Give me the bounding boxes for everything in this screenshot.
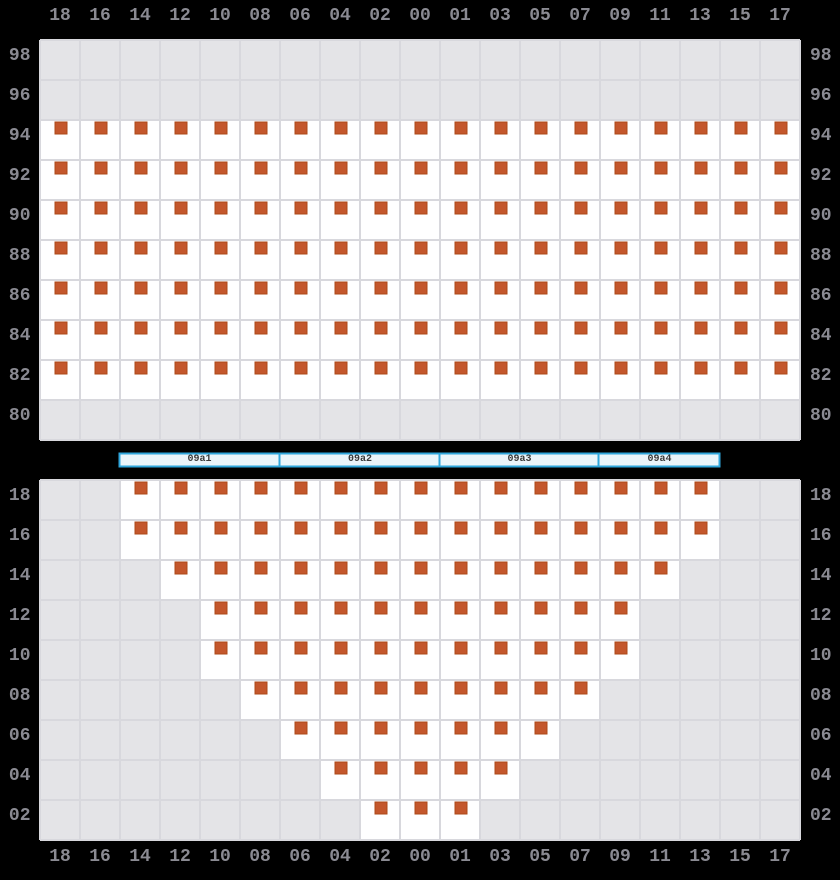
svg-text:09a1: 09a1 (187, 454, 211, 465)
svg-text:90: 90 (810, 206, 832, 226)
svg-text:86: 86 (810, 286, 832, 306)
svg-text:92: 92 (9, 166, 31, 186)
svg-text:11: 11 (649, 6, 671, 26)
svg-text:14: 14 (129, 6, 151, 26)
svg-text:98: 98 (9, 46, 31, 66)
svg-text:06: 06 (289, 847, 311, 867)
svg-text:16: 16 (810, 526, 832, 546)
svg-text:09a3: 09a3 (507, 454, 531, 465)
svg-text:10: 10 (9, 646, 31, 666)
svg-text:02: 02 (810, 806, 832, 826)
svg-text:18: 18 (9, 486, 31, 506)
svg-text:09: 09 (609, 847, 631, 867)
svg-text:90: 90 (9, 206, 31, 226)
svg-text:04: 04 (9, 766, 31, 786)
svg-text:18: 18 (49, 6, 71, 26)
svg-text:04: 04 (329, 847, 351, 867)
svg-text:01: 01 (449, 847, 471, 867)
svg-text:06: 06 (9, 726, 31, 746)
svg-text:03: 03 (489, 847, 511, 867)
svg-text:02: 02 (9, 806, 31, 826)
svg-text:96: 96 (9, 86, 31, 106)
svg-text:10: 10 (209, 6, 231, 26)
svg-text:86: 86 (9, 286, 31, 306)
svg-text:05: 05 (529, 6, 551, 26)
svg-text:07: 07 (569, 847, 591, 867)
svg-text:04: 04 (329, 6, 351, 26)
svg-text:06: 06 (289, 6, 311, 26)
svg-text:98: 98 (810, 46, 832, 66)
svg-text:14: 14 (129, 847, 151, 867)
svg-text:04: 04 (810, 766, 832, 786)
svg-text:10: 10 (810, 646, 832, 666)
svg-text:82: 82 (810, 366, 832, 386)
svg-text:16: 16 (89, 847, 111, 867)
svg-text:09a4: 09a4 (647, 454, 671, 465)
svg-text:12: 12 (810, 606, 832, 626)
svg-text:13: 13 (689, 847, 711, 867)
svg-text:08: 08 (249, 847, 271, 867)
svg-text:03: 03 (489, 6, 511, 26)
svg-text:06: 06 (810, 726, 832, 746)
svg-text:08: 08 (810, 686, 832, 706)
svg-text:12: 12 (169, 6, 191, 26)
svg-text:17: 17 (769, 847, 791, 867)
svg-text:02: 02 (369, 6, 391, 26)
svg-text:94: 94 (9, 126, 31, 146)
svg-text:08: 08 (249, 6, 271, 26)
svg-text:84: 84 (9, 326, 31, 346)
svg-text:15: 15 (729, 847, 751, 867)
svg-text:96: 96 (810, 86, 832, 106)
svg-text:09: 09 (609, 6, 631, 26)
svg-text:88: 88 (9, 246, 31, 266)
svg-text:92: 92 (810, 166, 832, 186)
svg-text:84: 84 (810, 326, 832, 346)
svg-text:00: 00 (409, 6, 431, 26)
svg-text:94: 94 (810, 126, 832, 146)
svg-text:08: 08 (9, 686, 31, 706)
svg-text:80: 80 (9, 406, 31, 426)
svg-text:05: 05 (529, 847, 551, 867)
svg-text:11: 11 (649, 847, 671, 867)
svg-text:13: 13 (689, 6, 711, 26)
svg-text:00: 00 (409, 847, 431, 867)
svg-text:10: 10 (209, 847, 231, 867)
svg-text:14: 14 (9, 566, 31, 586)
svg-text:18: 18 (49, 847, 71, 867)
svg-text:16: 16 (9, 526, 31, 546)
svg-text:15: 15 (729, 6, 751, 26)
svg-text:01: 01 (449, 6, 471, 26)
svg-text:02: 02 (369, 847, 391, 867)
svg-text:12: 12 (169, 847, 191, 867)
svg-text:14: 14 (810, 566, 832, 586)
svg-text:16: 16 (89, 6, 111, 26)
svg-text:12: 12 (9, 606, 31, 626)
svg-text:17: 17 (769, 6, 791, 26)
svg-text:80: 80 (810, 406, 832, 426)
svg-text:07: 07 (569, 6, 591, 26)
svg-text:88: 88 (810, 246, 832, 266)
svg-text:09a2: 09a2 (348, 454, 372, 465)
svg-text:18: 18 (810, 486, 832, 506)
svg-text:82: 82 (9, 366, 31, 386)
